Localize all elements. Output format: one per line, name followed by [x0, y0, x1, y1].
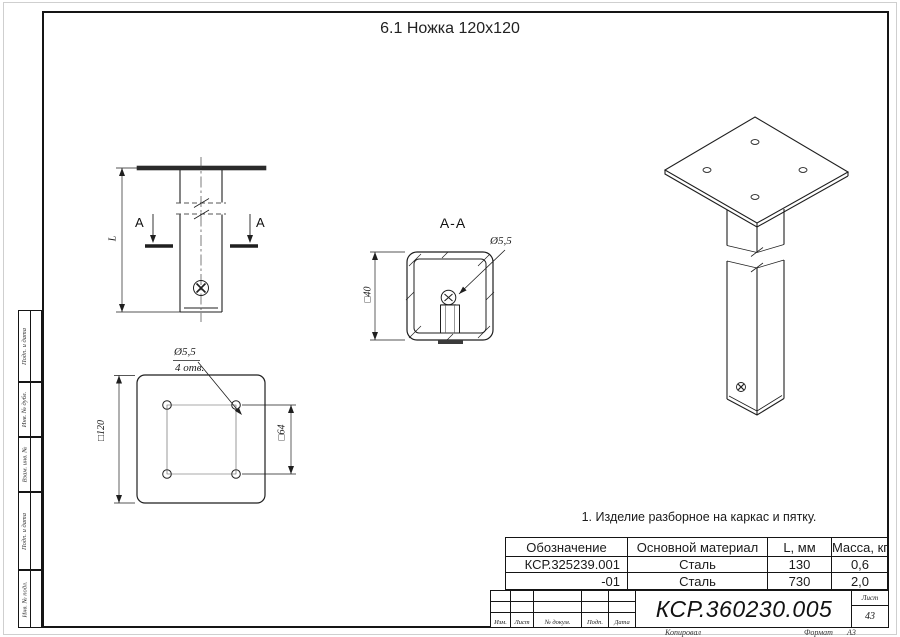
- tb-cell: [582, 591, 609, 602]
- format-label: Формат: [804, 628, 833, 637]
- spec-table: Обозначение Основной материал L, мм Масс…: [505, 537, 889, 590]
- iso-leg-bottom-inner: [729, 396, 782, 412]
- spec-cell-designation: -01: [506, 573, 628, 589]
- dim-arrow: [288, 405, 294, 413]
- tb-cell: [491, 591, 511, 602]
- spec-header-mass: Масса, кг: [832, 538, 888, 557]
- tb-label-list: Лист: [511, 613, 534, 627]
- section-dim-40-lines: [370, 252, 405, 340]
- dim-arrow: [372, 252, 378, 260]
- dim-arrow: [119, 168, 125, 176]
- dim-length-label: L: [107, 236, 118, 242]
- spec-cell-material: Сталь: [628, 557, 768, 573]
- spec-cell-length: 130: [768, 557, 832, 573]
- sheet-label: Лист: [852, 591, 888, 606]
- dim-arrow: [116, 376, 122, 384]
- title-block-revision-grid: Изм. Лист № докум. Подп. Дата: [491, 591, 636, 627]
- plate-hole-count-label: 4 отв.: [175, 362, 204, 374]
- iso-break-lines: [727, 245, 784, 269]
- section-leader: [459, 250, 505, 294]
- copied-label: Копировал: [648, 628, 718, 637]
- spec-header-material: Основной материал: [628, 538, 768, 557]
- tb-cell: [582, 602, 609, 613]
- dim-arrow: [119, 304, 125, 312]
- plate-dim-120-lines: [114, 376, 135, 504]
- section-screw-body-lines: [446, 305, 455, 333]
- tb-label-sign: Подп.: [582, 613, 609, 627]
- tb-label-docnum: № докум.: [534, 613, 582, 627]
- plate-dim-64-lines: [242, 405, 296, 474]
- spec-cell-designation: КСР.325239.001: [506, 557, 628, 573]
- spec-cell-mass: 2,0: [832, 573, 888, 589]
- drawing-note: 1. Изделие разборное на каркас и пятку.: [538, 510, 860, 524]
- section-letter-left: А: [135, 215, 144, 230]
- tb-cell: [609, 602, 635, 613]
- section-arrowhead-right: [247, 235, 253, 243]
- tb-cell: [534, 591, 582, 602]
- spec-header-designation: Обозначение: [506, 538, 628, 557]
- drawing-sheet: { "page": { "title": "6.1 Ножка 120х120"…: [0, 0, 900, 637]
- iso-screw-cross: [738, 384, 744, 390]
- tb-cell: [609, 591, 635, 602]
- plate-pattern-dim-label: □64: [277, 424, 288, 440]
- sheet-cell: Лист 43: [851, 591, 888, 627]
- dim-arrow: [372, 332, 378, 340]
- tb-label-date: Дата: [609, 613, 635, 627]
- spec-cell-length: 730: [768, 573, 832, 589]
- tb-cell: [491, 602, 511, 613]
- section-foot-pad: [438, 340, 463, 344]
- iso-view: [665, 117, 848, 415]
- iso-leg-bottom: [727, 399, 784, 416]
- tb-cell: [534, 602, 582, 613]
- section-arrowhead-left: [150, 235, 156, 243]
- plate-hole-dim-label: Ø5,5: [174, 346, 196, 358]
- front-break-slashes: [194, 199, 209, 220]
- section-view: [370, 250, 505, 344]
- plate-hole-pattern: [167, 405, 236, 474]
- spec-cell-material: Сталь: [628, 573, 768, 589]
- plate-outer-dim-label: □120: [96, 420, 107, 441]
- document-number: КСР.360230.005: [636, 591, 852, 627]
- title-block: Изм. Лист № докум. Подп. Дата КСР.360230…: [490, 590, 889, 628]
- plate-view: [114, 361, 296, 504]
- front-view: [116, 157, 266, 322]
- spec-cell-mass: 0,6: [832, 557, 888, 573]
- section-letter-right: А: [256, 215, 265, 230]
- format-value: А3: [847, 628, 856, 637]
- dim-arrow: [116, 495, 122, 503]
- section-view-title: А-А: [436, 215, 470, 231]
- front-dim-L-lines: [116, 168, 180, 312]
- spec-header-length: L, мм: [768, 538, 832, 557]
- iso-plate-top: [665, 117, 848, 223]
- sheet-number: 43: [852, 606, 888, 626]
- tb-label-izm: Изм.: [491, 613, 511, 627]
- section-screw-body: [441, 305, 460, 333]
- section-size-dim-label: □40: [363, 286, 374, 302]
- section-screw-cross: [445, 294, 453, 301]
- iso-leg-lower: [727, 260, 784, 415]
- plate-outline: [137, 375, 265, 503]
- front-top-plate: [137, 166, 266, 170]
- dim-arrow: [288, 466, 294, 474]
- tb-cell: [511, 591, 534, 602]
- tb-cell: [511, 602, 534, 613]
- section-arrow-lines: [153, 214, 250, 238]
- section-hole-dim-label: Ø5,5: [490, 235, 512, 247]
